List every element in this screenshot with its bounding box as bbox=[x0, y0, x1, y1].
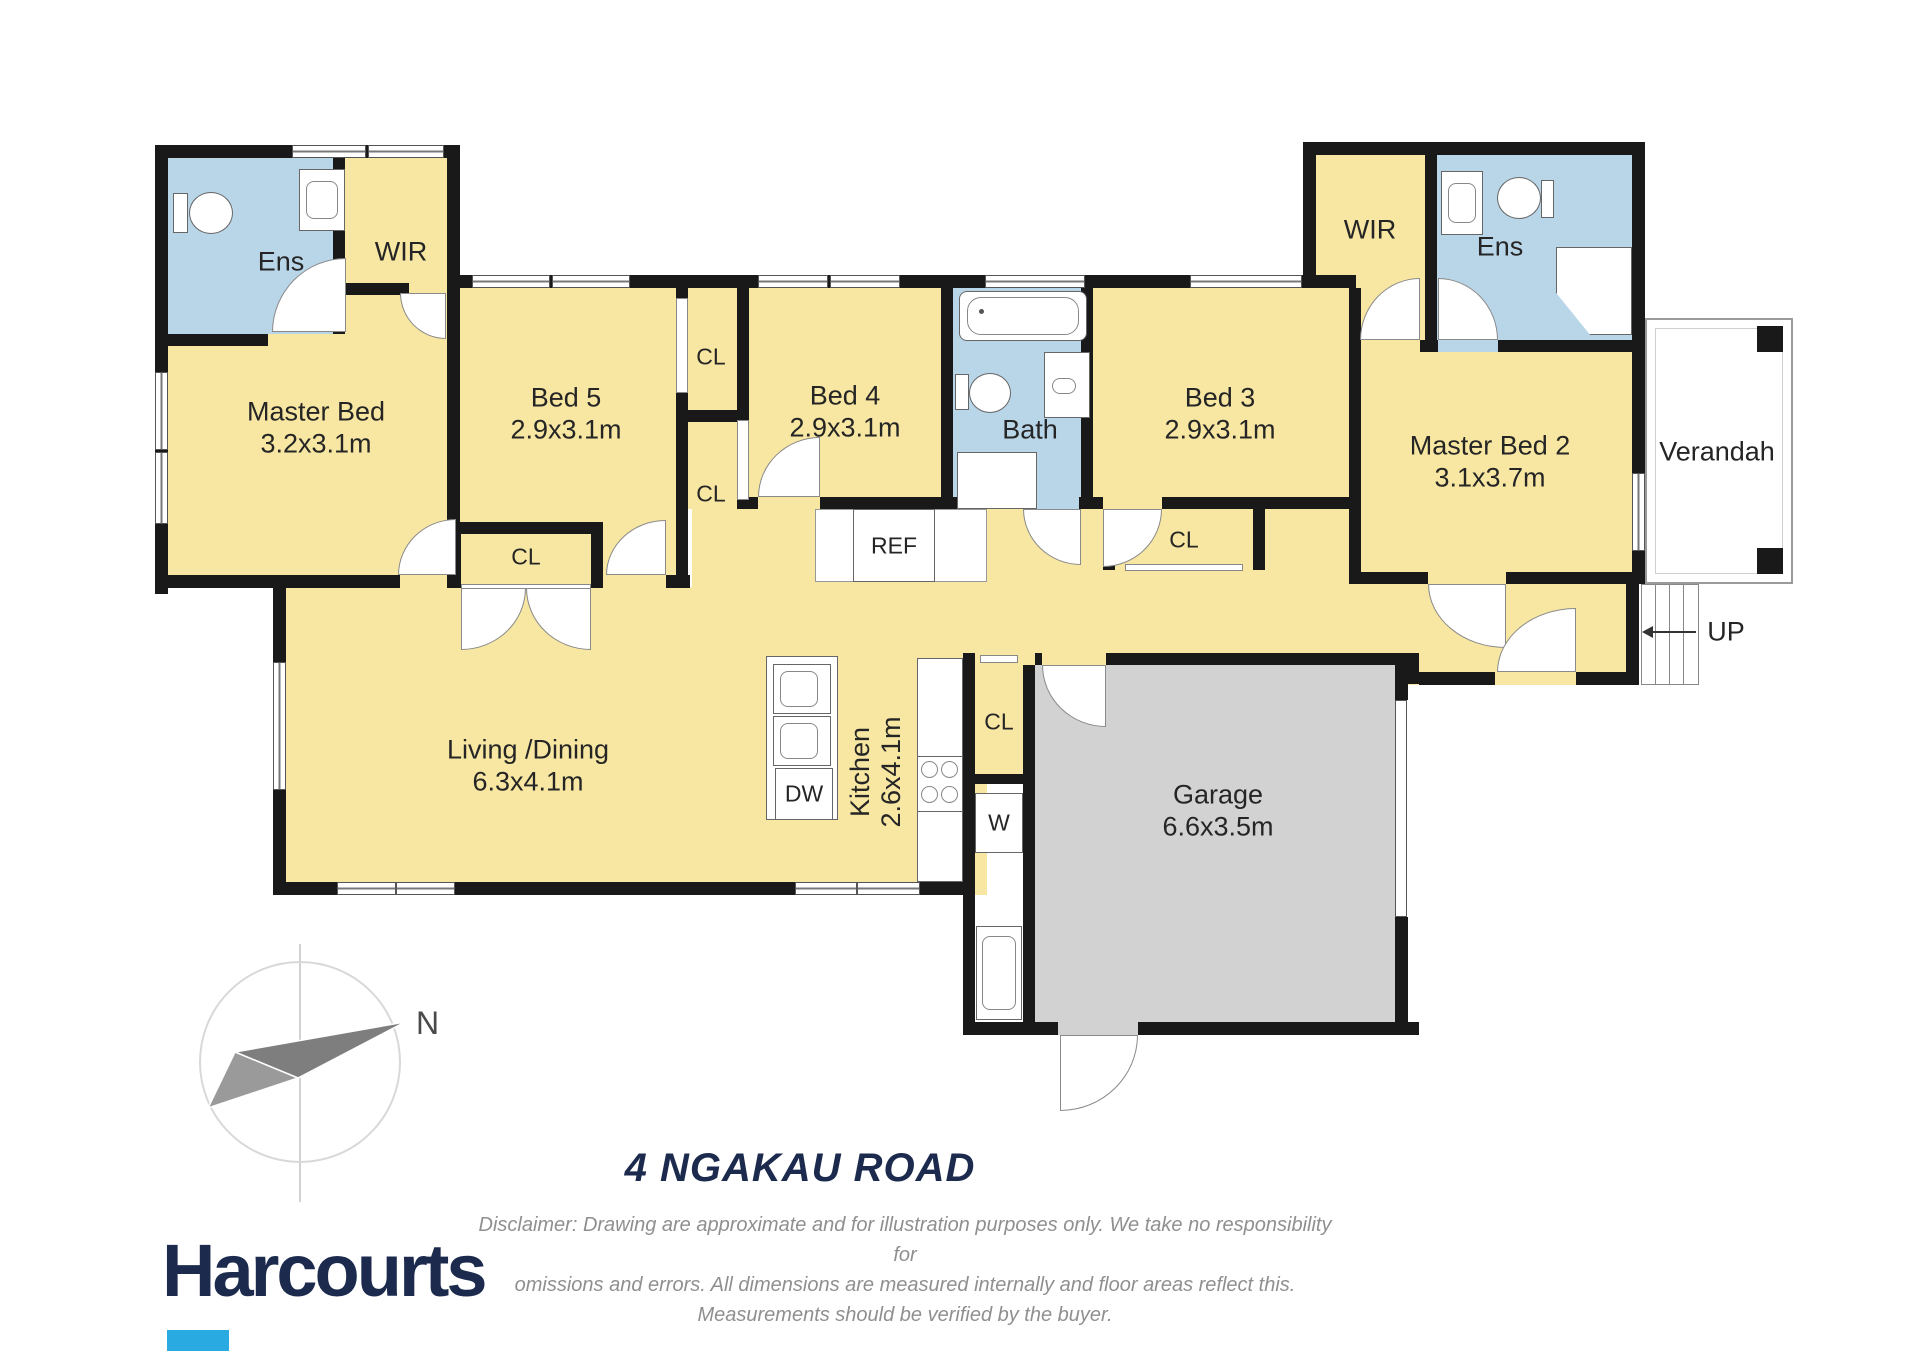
wall-segment bbox=[449, 522, 603, 534]
closet-label: CL bbox=[511, 544, 540, 571]
wall-segment bbox=[666, 575, 690, 588]
wall-segment bbox=[975, 774, 1023, 784]
wall-segment bbox=[1632, 353, 1645, 473]
shower-handle-icon bbox=[1052, 378, 1076, 394]
brand-logo: Harcourts bbox=[162, 1228, 485, 1313]
burner-icon bbox=[921, 786, 938, 803]
wall-segment bbox=[1632, 142, 1645, 353]
wall-segment bbox=[1498, 340, 1645, 352]
garage-door-icon bbox=[1395, 700, 1407, 917]
sliding-door bbox=[461, 584, 591, 589]
verandah-post bbox=[1757, 548, 1783, 574]
room-label-master-bed: Master Bed bbox=[247, 397, 385, 428]
window bbox=[985, 275, 1085, 288]
sliding-door bbox=[676, 298, 688, 393]
sink-basin-icon bbox=[780, 671, 818, 707]
sliding-door bbox=[980, 655, 1018, 663]
window bbox=[155, 452, 168, 524]
disclaimer-line: Measurements should be verified by the b… bbox=[475, 1300, 1335, 1330]
wall-segment bbox=[162, 334, 268, 346]
disclaimer-line: omissions and errors. All dimensions are… bbox=[475, 1270, 1335, 1300]
compass-rose: N bbox=[180, 930, 480, 1220]
window bbox=[552, 275, 630, 288]
room-dims-kitchen: 2.6x4.1m bbox=[876, 716, 907, 827]
window bbox=[472, 275, 550, 288]
burner-icon bbox=[941, 786, 958, 803]
bathtub-inner-icon bbox=[967, 297, 1079, 335]
wall-segment bbox=[1419, 672, 1495, 685]
basin-icon bbox=[1448, 183, 1476, 223]
wall-segment bbox=[1023, 665, 1035, 1035]
wall-segment bbox=[1420, 340, 1438, 352]
toilet-icon bbox=[189, 192, 233, 234]
wall-segment bbox=[155, 145, 168, 594]
stair-tread bbox=[1655, 584, 1656, 685]
closet-label: CL bbox=[696, 481, 725, 508]
window bbox=[795, 882, 857, 895]
wall-segment bbox=[1349, 572, 1428, 584]
toilet-icon bbox=[1497, 177, 1541, 219]
room-label-bed4: Bed 4 bbox=[810, 381, 881, 412]
wall-segment bbox=[1506, 572, 1645, 584]
stairs-up-label: UP bbox=[1707, 617, 1745, 648]
room-label-wir-left: WIR bbox=[375, 237, 427, 268]
up-arrow-head-icon bbox=[1642, 626, 1653, 638]
room-label-kitchen-group: Kitchen 2.6x4.1m bbox=[845, 716, 907, 827]
window bbox=[1632, 473, 1645, 551]
toilet-tank-icon bbox=[173, 193, 188, 233]
window bbox=[292, 145, 366, 158]
window bbox=[396, 882, 455, 895]
room-label-bed5: Bed 5 bbox=[531, 383, 602, 414]
burner-icon bbox=[921, 761, 938, 778]
sliding-door bbox=[1125, 564, 1243, 571]
up-arrow-line bbox=[1650, 631, 1696, 633]
wall-segment bbox=[1253, 509, 1265, 570]
toilet-tank-icon bbox=[1541, 180, 1554, 218]
wall-segment bbox=[963, 1022, 1058, 1035]
window bbox=[758, 275, 828, 288]
page-title: 4 NGAKAU ROAD bbox=[625, 1146, 976, 1191]
wall-segment bbox=[1138, 1022, 1419, 1035]
compass-north-label: N bbox=[416, 1005, 439, 1041]
wall-segment bbox=[1079, 497, 1103, 509]
room-dims-living: 6.3x4.1m bbox=[472, 767, 583, 798]
closet-column-floor bbox=[688, 288, 737, 509]
room-label-verandah: Verandah bbox=[1659, 437, 1775, 468]
wall-segment bbox=[941, 288, 953, 509]
closet-label: CL bbox=[984, 709, 1013, 736]
wall-segment bbox=[1425, 155, 1437, 352]
wall-segment bbox=[1349, 340, 1360, 352]
wall-segment bbox=[1035, 653, 1042, 665]
window bbox=[273, 662, 286, 790]
wall-segment bbox=[1626, 584, 1639, 685]
wall-segment bbox=[1349, 288, 1361, 584]
stair-tread bbox=[1683, 584, 1684, 685]
laundry-tub-inner-icon bbox=[982, 936, 1016, 1010]
closet-label: CL bbox=[1169, 527, 1198, 554]
sliding-door bbox=[737, 420, 749, 500]
room-label-wir-right: WIR bbox=[1344, 215, 1396, 246]
room-dims-master-bed2: 3.1x3.7m bbox=[1434, 463, 1545, 494]
room-dims-master-bed: 3.2x3.1m bbox=[260, 429, 371, 460]
disclaimer-block: Disclaimer: Drawing are approximate and … bbox=[475, 1210, 1335, 1330]
fridge-label: REF bbox=[871, 533, 917, 560]
room-dims-bed4: 2.9x3.1m bbox=[789, 413, 900, 444]
wall-segment bbox=[1162, 497, 1356, 509]
bath-vanity-icon bbox=[957, 452, 1037, 509]
basin-icon bbox=[306, 181, 338, 219]
room-label-bed3: Bed 3 bbox=[1185, 383, 1256, 414]
window bbox=[155, 372, 168, 450]
washer-label: W bbox=[988, 810, 1010, 837]
stair-tread bbox=[1669, 584, 1670, 685]
wall-segment bbox=[1407, 653, 1419, 684]
room-label-bath: Bath bbox=[1002, 415, 1058, 446]
room-label-master-bed2: Master Bed 2 bbox=[1410, 431, 1571, 462]
wall-segment bbox=[963, 653, 975, 1035]
brand-accent-bar bbox=[167, 1330, 229, 1351]
room-label-garage: Garage bbox=[1173, 780, 1263, 811]
wall-segment bbox=[1106, 653, 1407, 665]
room-label-kitchen: Kitchen bbox=[845, 716, 876, 827]
closet-label: CL bbox=[696, 344, 725, 371]
toilet-icon bbox=[969, 373, 1011, 413]
door-arc bbox=[1060, 1035, 1138, 1111]
room-dims-bed5: 2.9x3.1m bbox=[510, 415, 621, 446]
window bbox=[368, 145, 444, 158]
room-dims-garage: 6.6x3.5m bbox=[1162, 812, 1273, 843]
window bbox=[830, 275, 900, 288]
wall-segment bbox=[1303, 142, 1645, 155]
window bbox=[1190, 275, 1302, 288]
window bbox=[857, 882, 920, 895]
disclaimer-line: Disclaimer: Drawing are approximate and … bbox=[475, 1210, 1335, 1270]
burner-icon bbox=[941, 761, 958, 778]
room-label-living: Living /Dining bbox=[447, 735, 609, 766]
room-dims-bed3: 2.9x3.1m bbox=[1164, 415, 1275, 446]
wall-segment bbox=[1395, 917, 1408, 1035]
sink-basin-icon bbox=[780, 723, 818, 759]
wall-segment bbox=[1303, 142, 1316, 288]
dishwasher-label: DW bbox=[785, 781, 823, 808]
tap-dot-icon bbox=[979, 309, 984, 314]
floorplan-canvas: Ens WIR Master Bed 3.2x3.1m Bed 5 2.9x3.… bbox=[0, 0, 1920, 1358]
window bbox=[337, 882, 396, 895]
toilet-tank-icon bbox=[955, 374, 969, 410]
verandah-post bbox=[1757, 326, 1783, 352]
room-label-ens-right: Ens bbox=[1477, 232, 1524, 263]
room-label-ens-left: Ens bbox=[258, 247, 305, 278]
